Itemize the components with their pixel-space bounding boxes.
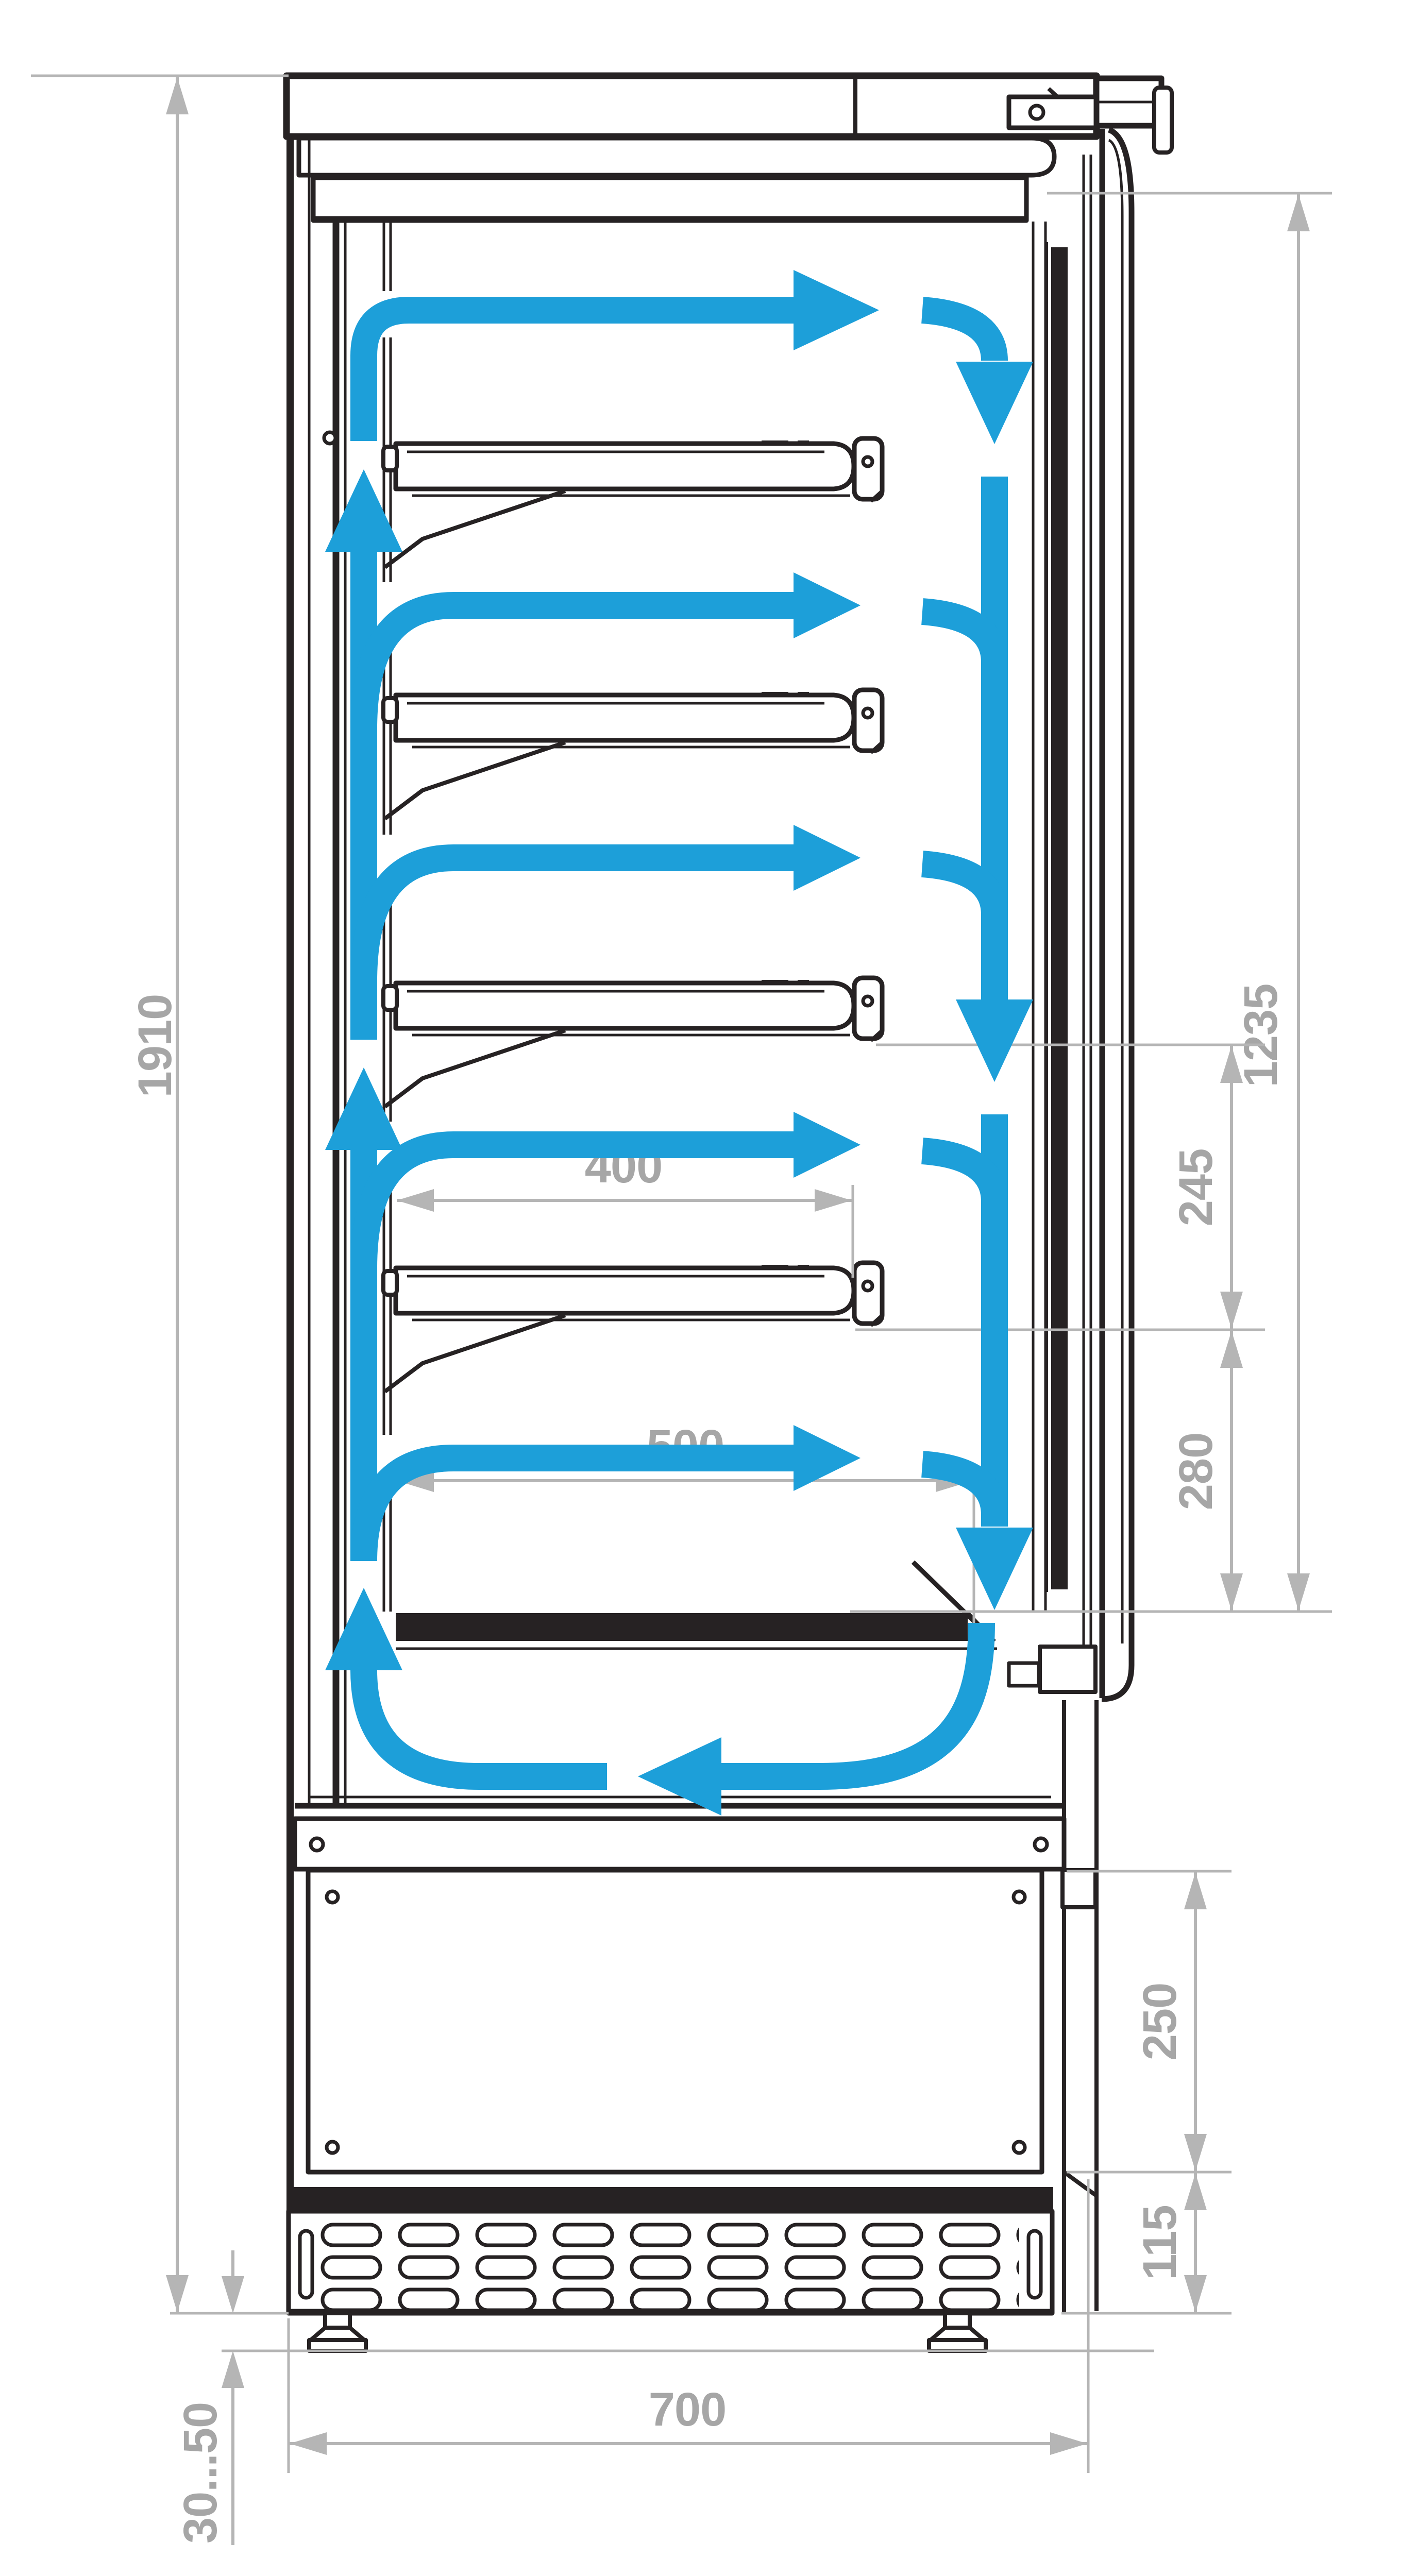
airflow-down-arrow-icon (956, 1528, 1033, 1610)
compartment-250-label: 250 (1134, 1983, 1186, 2061)
panel-screw-icon (1014, 2142, 1025, 2153)
bolt-icon (1035, 1838, 1047, 1851)
compartment-front-panel (308, 1870, 1042, 2172)
shelf-gap-245-label: 245 (1170, 1149, 1222, 1227)
overall-height-label: 1910 (129, 994, 181, 1098)
shelf-1 (383, 438, 882, 567)
airflow (325, 270, 1033, 1816)
airflow-shelf-stream (364, 1458, 794, 1561)
bolt-icon (311, 1838, 323, 1851)
airflow-top-stream (364, 310, 794, 441)
airflow-downturn (922, 612, 994, 662)
foot-range-label: 30...50 (174, 2402, 227, 2544)
panel-screw-icon (327, 1891, 338, 1903)
door-glass-pane (1051, 247, 1068, 1589)
airflow-right-arrow-icon (794, 270, 879, 350)
canopy (286, 76, 1097, 221)
adjustable-foot-right (929, 2313, 986, 2351)
dimension-overall-height: 1910 (31, 76, 289, 2313)
door-glass-height-label: 1235 (1235, 984, 1287, 1088)
wall-screw-icon (324, 432, 335, 444)
airflow-down-arrow-icon (956, 362, 1033, 444)
vent-grille (289, 2187, 1053, 2313)
grille-115-label: 115 (1134, 2205, 1186, 2280)
vent-slots (320, 2219, 1019, 2312)
airflow-shelf-stream (364, 858, 794, 981)
cabinet-section-drawing: 1910 1235 245 280 250 (0, 0, 1417, 2576)
door-bottom-hinge (1040, 1647, 1095, 1692)
interior-right-liner (1033, 222, 1045, 1612)
technical-drawing-page: 1910 1235 245 280 250 (0, 0, 1417, 2576)
shelf-gap-280-label: 280 (1170, 1433, 1222, 1511)
hinge-screw-icon (1030, 106, 1043, 119)
airflow-right-arrow-icon (794, 1112, 861, 1178)
shelf-3 (383, 978, 882, 1107)
airflow-downturn (922, 1151, 994, 1201)
dimension-shelf-depth-400: 400 (397, 1140, 853, 1278)
airflow-downturn (922, 1464, 994, 1515)
shelf-4 (383, 1263, 882, 1392)
panel-screw-icon (327, 2142, 338, 2153)
interior-base (396, 1562, 997, 1649)
cabinet-bottom (295, 1797, 1064, 1806)
airflow-downturn (922, 310, 994, 361)
airflow-down-arrow-icon (956, 999, 1033, 1082)
airflow-downturn (922, 864, 994, 914)
depth-700-label: 700 (649, 2383, 727, 2436)
airflow-return-right (721, 1623, 982, 1776)
dimension-compartment-250: 250 (1067, 1871, 1232, 2172)
dimension-shelf-gap-280: 280 (1170, 1331, 1243, 1611)
shelf-2 (383, 690, 882, 819)
adjustable-foot-left (309, 2313, 366, 2351)
airflow-right-arrow-icon (794, 825, 861, 891)
panel-screw-icon (1014, 1891, 1025, 1903)
door-handle-profile (1102, 130, 1132, 1699)
airflow-return-left (364, 1670, 607, 1776)
airflow-right-arrow-icon (794, 572, 861, 638)
